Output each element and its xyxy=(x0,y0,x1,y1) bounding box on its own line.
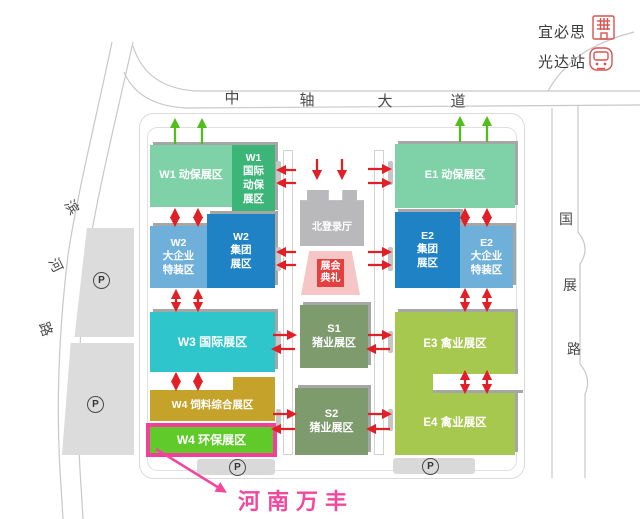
hall-label: 特装区 xyxy=(163,264,195,277)
hall-label: 猪业展区 xyxy=(312,337,356,351)
hall-label: E1 动保展区 xyxy=(425,169,486,183)
hall-w1: W1 动保展区 xyxy=(150,145,232,207)
hall-label: 典礼 xyxy=(321,273,341,285)
hall-label: E2 xyxy=(480,237,493,250)
hall-label: S2 xyxy=(325,408,338,422)
hall-w1-international: W1 国际 动保 展区 xyxy=(232,145,275,213)
hall-label: 展区 xyxy=(417,257,438,270)
corridor-east xyxy=(374,150,384,455)
hall-label: 特装区 xyxy=(471,264,503,277)
guozhan-road-label: 路 xyxy=(566,339,582,359)
hall-label: S1 xyxy=(327,323,340,337)
hall-w4-environment-highlighted: W4 环保展区 xyxy=(146,423,277,457)
parking-icon: P xyxy=(229,459,246,476)
hall-w3: W3 国际展区 xyxy=(150,312,275,372)
central-avenue-label: 大 xyxy=(376,90,394,111)
parking-symbol: P xyxy=(234,462,241,473)
hall-w2-group: W2 集团 展区 xyxy=(207,214,275,288)
guozhan-road-line xyxy=(578,106,588,478)
hall-label: 集团 xyxy=(231,244,252,257)
hall-label: 集团 xyxy=(417,243,438,256)
hall-label: W1 xyxy=(246,152,262,166)
hall-gap-shadow xyxy=(433,390,523,393)
parking-symbol: P xyxy=(427,461,434,472)
hall-e3-e4-block: E3 禽业展区 E4 禽业展区 xyxy=(395,312,515,455)
binhe-road-label: 路 xyxy=(34,318,58,340)
central-avenue-label: 中 xyxy=(223,87,241,108)
hall-label: 动保 xyxy=(243,179,264,193)
central-avenue-label: 道 xyxy=(449,90,467,111)
corridor-west xyxy=(283,150,293,455)
hotel-building-icon xyxy=(589,12,619,42)
hall-label: W2 xyxy=(171,237,187,250)
hall-label: E3 禽业展区 xyxy=(395,337,515,351)
hall-label: W1 动保展区 xyxy=(159,169,223,183)
guozhan-road-label: 国 xyxy=(558,209,574,229)
parking-icon: P xyxy=(93,272,110,289)
hall-label: 猪业展区 xyxy=(310,422,354,436)
central-avenue-label: 轴 xyxy=(298,89,316,110)
hall-label: E2 xyxy=(421,230,434,243)
ceremony-label-box: 展会 典礼 xyxy=(317,259,344,287)
hall-label: W4 饲料综合展区 xyxy=(172,399,254,412)
hall-e2-special: E2 大企业 特装区 xyxy=(460,226,513,288)
hall-e2-group: E2 集团 展区 xyxy=(395,212,460,288)
parking-icon: P xyxy=(87,396,104,413)
station-label: 光达站 xyxy=(538,51,586,72)
hall-label: E4 禽业展区 xyxy=(395,416,515,430)
parking-symbol: P xyxy=(98,275,105,286)
hall-s2: S2 猪业展区 xyxy=(295,388,368,455)
hall-label: 国际 xyxy=(243,165,264,179)
hall-e1: E1 动保展区 xyxy=(395,144,515,208)
hall-label: W3 国际展区 xyxy=(178,335,247,350)
hall-w2-special: W2 大企业 特装区 xyxy=(150,226,207,288)
parking-icon: P xyxy=(422,458,439,475)
hall-s1: S1 猪业展区 xyxy=(300,305,368,368)
hall-gap xyxy=(433,374,519,390)
hall-label: 大企业 xyxy=(471,250,503,263)
north-registration-hall: 北登录厅 xyxy=(300,190,364,246)
hall-label: 展会 xyxy=(321,261,341,273)
hall-label: 展区 xyxy=(243,193,264,207)
binhe-road-label: 河 xyxy=(44,253,69,276)
green-entrance-arrows xyxy=(175,119,487,144)
parking-symbol: P xyxy=(92,399,99,410)
hall-label: 大企业 xyxy=(163,250,195,263)
exhibitor-callout-label: 河南万丰 xyxy=(238,484,354,516)
hall-label: 展区 xyxy=(231,258,252,271)
train-station-icon xyxy=(586,44,616,74)
hall-label: W2 xyxy=(233,231,249,244)
venue-map: { "landmarks": { "hotel": { "label": "宜必… xyxy=(0,0,640,519)
hall-label: 北登录厅 xyxy=(312,222,352,235)
binhe-road-label: 滨 xyxy=(59,195,84,219)
hall-label: W4 环保展区 xyxy=(177,433,246,448)
hotel-label: 宜必思 xyxy=(538,21,586,42)
hall-w4-feed-arm xyxy=(233,377,275,391)
hall-w4-feed: W4 饲料综合展区 xyxy=(150,390,275,421)
guozhan-road-label: 展 xyxy=(562,275,578,295)
